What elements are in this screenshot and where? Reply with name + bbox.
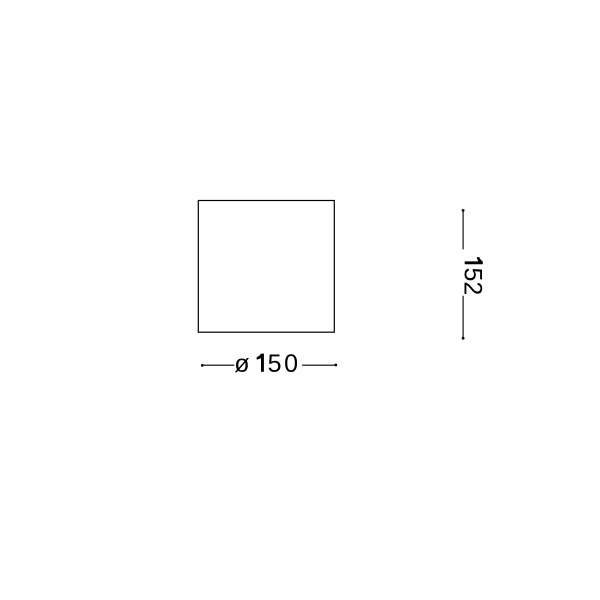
svg-text:5: 5 — [268, 350, 282, 378]
svg-text:ø: ø — [234, 350, 249, 378]
svg-text:52: 52 — [459, 268, 487, 296]
svg-text:0: 0 — [284, 350, 298, 378]
